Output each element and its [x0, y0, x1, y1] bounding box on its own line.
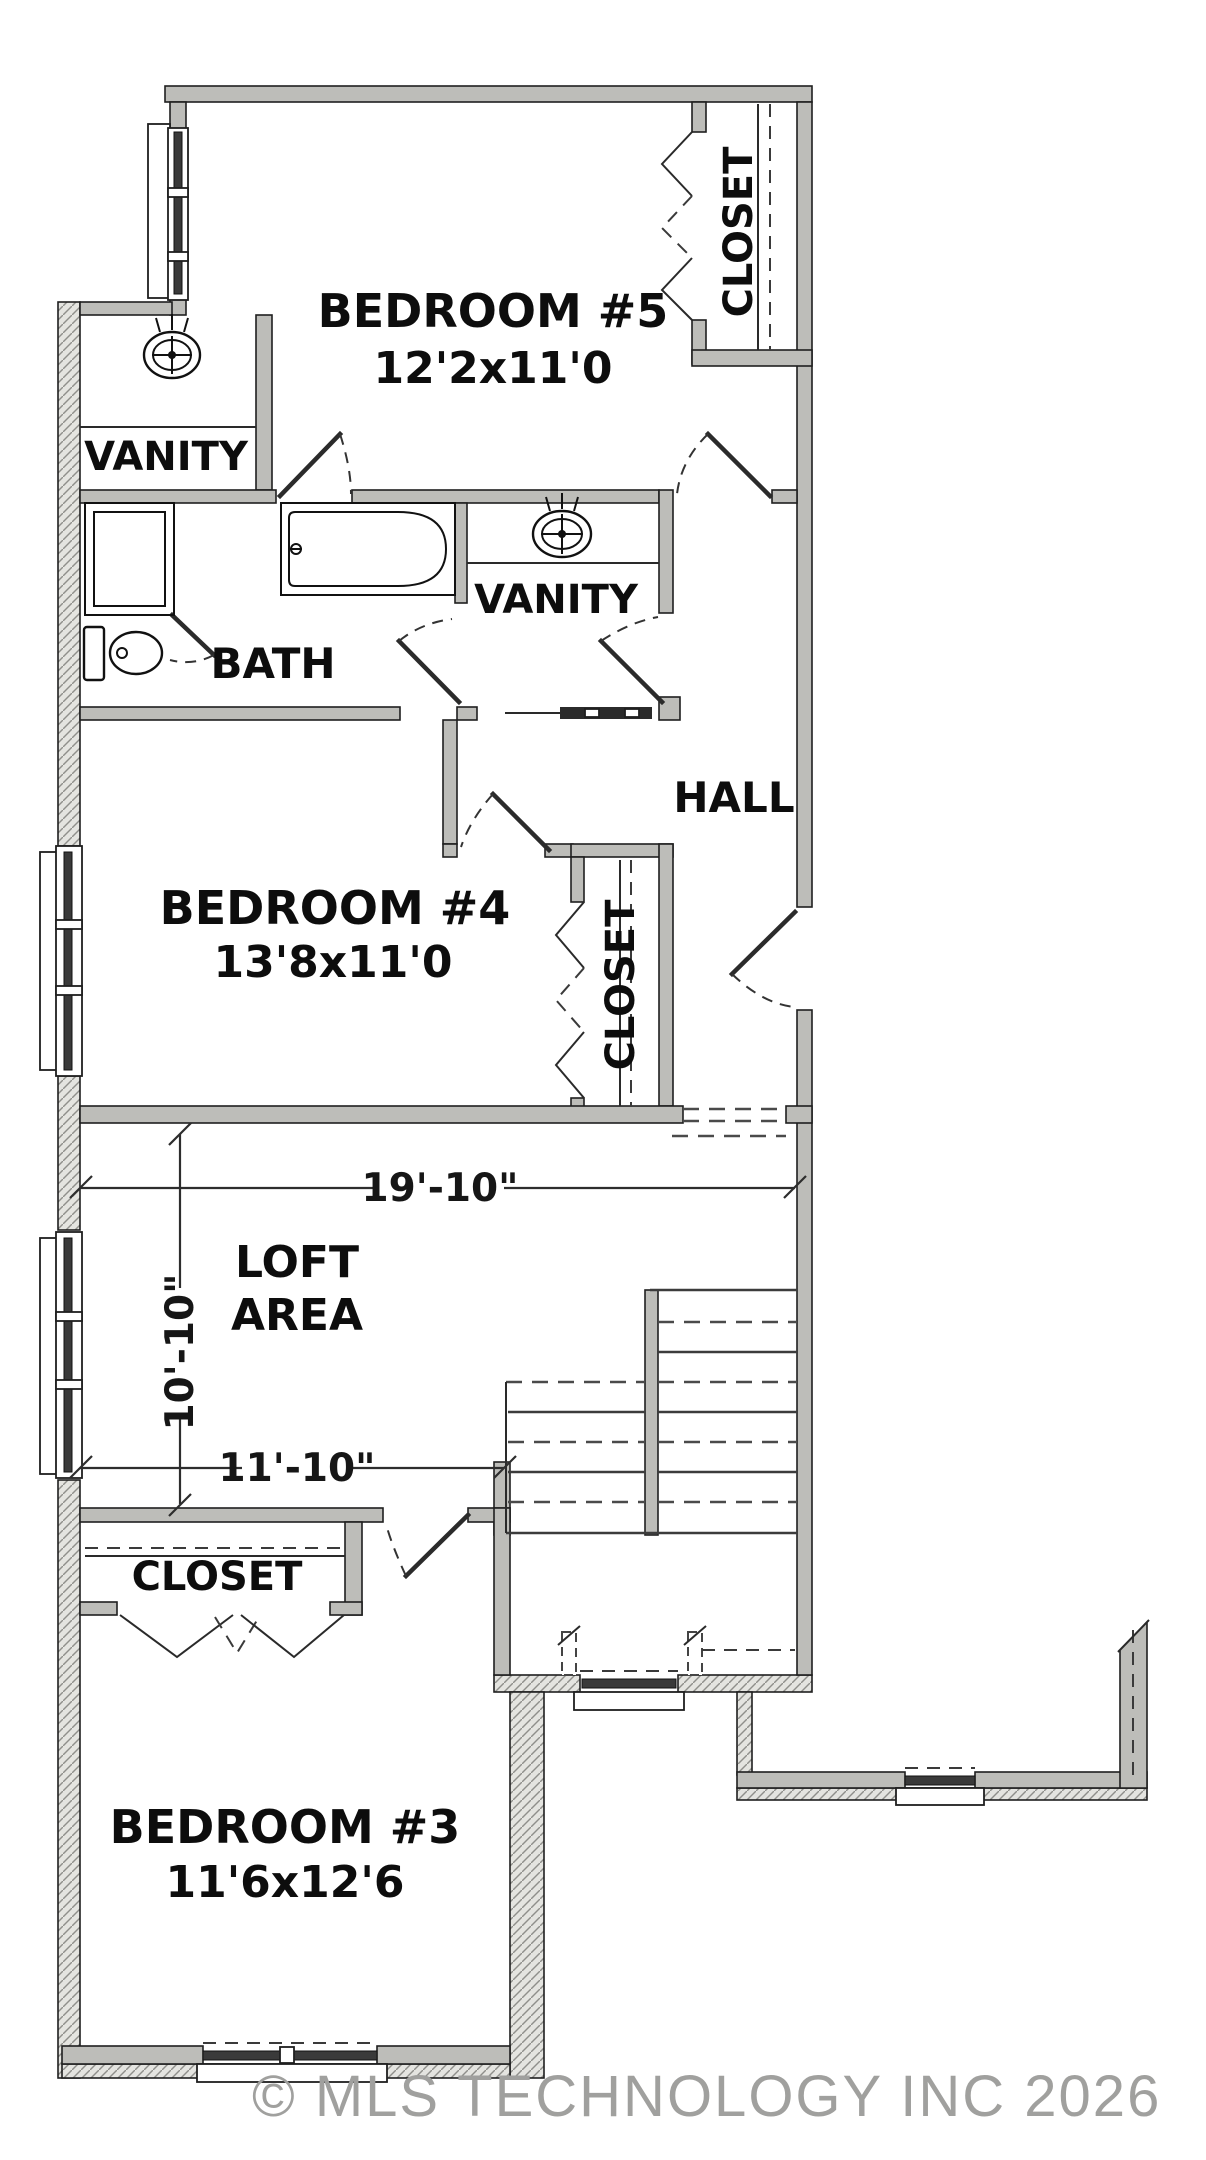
door-vanity-hall [601, 617, 662, 702]
room-label-bedroom4: BEDROOM #4 [160, 881, 511, 935]
dimension-label-19-10: 19'-10" [362, 1166, 519, 1211]
window-bedroom5 [148, 124, 188, 300]
floor-plan-page: 19'-10" 10'-10" 11'-10" BEDROOM #5 12'2x… [0, 0, 1206, 2160]
window-porch [896, 1768, 984, 1805]
room-size-bedroom3: 11'6x12'6 [165, 1857, 404, 1908]
door-bath [399, 619, 459, 702]
closet-label-bedroom3: CLOSET [132, 1554, 304, 1600]
door-hall-right [732, 912, 795, 1007]
door-shower [170, 615, 214, 662]
room-label-bath: BATH [210, 639, 335, 688]
room-label-vanity-middle: VANITY [474, 577, 639, 623]
closet-label-bedroom4: CLOSET [598, 899, 644, 1071]
door-bedroom5-bath [280, 434, 351, 496]
shower [85, 503, 174, 615]
toilet [84, 627, 162, 680]
dimension-lines: 19'-10" 10'-10" 11'-10" [70, 1123, 806, 1516]
window-bedroom4 [40, 846, 82, 1076]
door-bedroom4 [461, 794, 549, 850]
room-label-vanity-upper: VANITY [84, 434, 249, 480]
door-bedroom5-hall [677, 434, 770, 496]
window-loft [40, 1232, 82, 1478]
dimension-loft-lower-width: 11'-10" [70, 1446, 516, 1491]
room-size-bedroom4: 13'8x11'0 [213, 937, 452, 988]
room-label-loft-2: AREA [231, 1290, 363, 1341]
closet-label-bedroom5: CLOSET [716, 146, 762, 318]
dimension-loft-depth: 10'-10" [158, 1123, 203, 1516]
door-bedroom3 [386, 1515, 468, 1576]
room-label-bedroom3: BEDROOM #3 [110, 1800, 461, 1854]
sink-vanity-upper [80, 314, 256, 427]
floor-plan-canvas: 19'-10" 10'-10" 11'-10" BEDROOM #5 12'2x… [0, 0, 1206, 2160]
room-label-loft-1: LOFT [235, 1237, 359, 1288]
room-size-bedroom5: 12'2x11'0 [373, 343, 612, 394]
watermark: © MLS TECHNOLOGY INC 2026 [252, 2064, 1161, 2129]
bathtub [281, 503, 455, 595]
pocket-door [505, 707, 652, 719]
room-label-hall: HALL [673, 773, 794, 822]
room-label-bedroom5: BEDROOM #5 [318, 284, 669, 338]
dimension-label-10-10: 10'-10" [158, 1274, 203, 1431]
window-landing [574, 1671, 684, 1710]
dimension-label-11-10: 11'-10" [219, 1446, 376, 1491]
